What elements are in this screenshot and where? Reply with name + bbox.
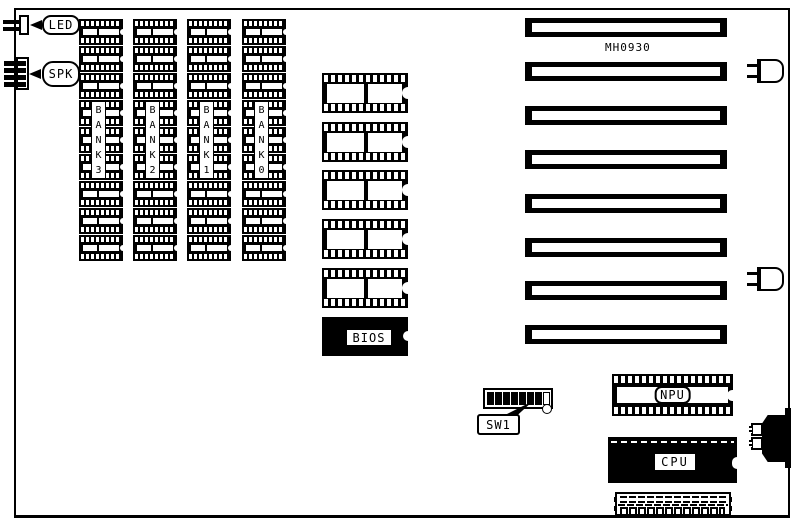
- led-callout: LED: [42, 15, 80, 35]
- sw1-label: SW1: [486, 418, 511, 432]
- connector-lug: [614, 497, 617, 502]
- keyboard-connector: [762, 415, 788, 462]
- slot-stripe: [532, 111, 720, 120]
- chip-pins: [189, 92, 229, 97]
- slot-stripe: [532, 23, 720, 32]
- chip-pins: [135, 65, 175, 70]
- expansion-slot: [525, 150, 727, 169]
- chip-pins: [244, 92, 284, 97]
- power-pin: [674, 496, 681, 503]
- bank-label-char: 0: [258, 163, 264, 178]
- chip-pins: [189, 183, 229, 188]
- chip-body-window: [207, 191, 227, 197]
- chip-body-window: [368, 84, 402, 103]
- spk-connector-pin: [4, 75, 26, 80]
- chip-pins: [244, 210, 284, 215]
- chip-body-window: [327, 230, 364, 249]
- chip-pins: [81, 48, 121, 53]
- power-connector: [615, 492, 731, 516]
- chip-pins: [135, 38, 175, 43]
- memory-chip: [187, 73, 231, 99]
- memory-bank-bank1: BANK1: [187, 19, 231, 264]
- chip-pins: [81, 21, 121, 26]
- bank-label-char: A: [95, 118, 101, 133]
- chip-body-window: [191, 245, 205, 251]
- expansion-slot: [525, 106, 727, 125]
- chip-body-window: [327, 84, 364, 103]
- chip-pins: [189, 48, 229, 53]
- chip-body-window: [153, 83, 173, 89]
- bank-label-char: 2: [149, 163, 155, 178]
- chip-body-window: [137, 56, 151, 62]
- bank-label: BANK0: [254, 101, 269, 179]
- board-model-label: MH0930: [605, 41, 651, 54]
- dip-switch-segment: [487, 392, 494, 405]
- chip-body-window: [83, 83, 97, 89]
- memory-bank-bank3: BANK3: [79, 19, 123, 264]
- chip-pins: [189, 21, 229, 26]
- chip-body-window: [137, 29, 151, 35]
- memory-chip: [242, 181, 286, 207]
- chip-body-window: [153, 245, 173, 251]
- keyboard-connector-pin: [751, 437, 763, 450]
- power-hole: [674, 507, 682, 516]
- chip-body-window: [207, 29, 227, 35]
- chip-body-window: [99, 83, 119, 89]
- chip-body-window: [207, 56, 227, 62]
- chip-body-window: [153, 191, 173, 197]
- power-connector-divider: [618, 504, 728, 506]
- spk-connector-pin: [4, 68, 26, 73]
- chip-pins: [324, 172, 406, 179]
- power-hole: [692, 507, 700, 516]
- slot-stripe: [532, 67, 720, 76]
- bank-label: BANK1: [199, 101, 214, 179]
- bank-label-char: K: [258, 148, 264, 163]
- chip-pins: [81, 210, 121, 215]
- chip-body-window: [246, 83, 260, 89]
- chip-pins: [244, 21, 284, 26]
- chip-pins: [244, 200, 284, 205]
- bank-label-char: A: [258, 118, 264, 133]
- bank-label-char: 1: [203, 163, 209, 178]
- memory-chip: [79, 46, 123, 72]
- expansion-slot: [525, 18, 727, 37]
- slot-stripe: [532, 199, 720, 208]
- memory-chip: [79, 208, 123, 234]
- cpu-socket-dashes: [611, 441, 734, 443]
- expansion-slot: [525, 62, 727, 81]
- power-pin: [665, 496, 672, 503]
- chip-pins: [135, 92, 175, 97]
- chip-body-window: [83, 56, 97, 62]
- chip-pins: [324, 153, 406, 160]
- sw1-leader-dot: [542, 404, 552, 414]
- memory-chip: [242, 235, 286, 261]
- chip-pins: [324, 221, 406, 228]
- connector-lug: [614, 506, 617, 511]
- chip-pins: [135, 237, 175, 242]
- chip-body-window: [99, 218, 119, 224]
- slot-stripe: [532, 286, 720, 295]
- chip-notch: [732, 457, 737, 469]
- chip-body-window: [137, 191, 151, 197]
- power-pin: [692, 496, 699, 503]
- chip-body-window: [368, 181, 402, 200]
- chip-pins: [614, 407, 731, 414]
- edge-connector: [747, 267, 787, 291]
- expansion-slot: [525, 194, 727, 213]
- chip-body-window: [191, 29, 205, 35]
- chip-body-window: [137, 83, 151, 89]
- chip-pins: [244, 237, 284, 242]
- chip-body-window: [368, 230, 402, 249]
- rom-chip: [322, 170, 408, 210]
- bank-label-char: B: [149, 103, 155, 118]
- chip-pins: [135, 210, 175, 215]
- chip-notch: [402, 184, 408, 196]
- rom-chip: [322, 268, 408, 308]
- chip-notch: [402, 136, 408, 148]
- spk-callout: SPK: [42, 61, 80, 87]
- memory-chip: [242, 73, 286, 99]
- chip-body-window: [246, 29, 260, 35]
- chip-pins: [189, 65, 229, 70]
- chip-notch: [402, 233, 408, 245]
- npu-chip: NPU: [612, 374, 733, 416]
- chip-body-window: [207, 245, 227, 251]
- bank-label-char: B: [203, 103, 209, 118]
- spk-label: SPK: [49, 67, 74, 81]
- power-pin: [683, 496, 690, 503]
- connector-lug: [729, 497, 732, 502]
- edge-connector: [747, 59, 787, 83]
- memory-chip: [133, 208, 177, 234]
- connector-lug: [729, 506, 732, 511]
- chip-body-window: [191, 56, 205, 62]
- rom-chip: [322, 219, 408, 259]
- chip-body-window: [262, 56, 282, 62]
- chip-pins: [81, 65, 121, 70]
- chip-notch: [402, 282, 408, 294]
- dip-switch-segment: [511, 392, 518, 405]
- chip-pins: [81, 183, 121, 188]
- chip-body-window: [99, 29, 119, 35]
- chip-pins: [81, 200, 121, 205]
- chip-body-window: [262, 83, 282, 89]
- chip-pins: [324, 201, 406, 208]
- chip-body-window: [83, 191, 97, 197]
- chip-pins: [135, 254, 175, 259]
- power-pin: [719, 496, 726, 503]
- memory-chip: [79, 19, 123, 45]
- chip-body-window: [99, 245, 119, 251]
- led-connector-housing: [19, 15, 29, 35]
- dip-switch-segment: [519, 392, 526, 405]
- bank-label-char: 3: [95, 163, 101, 178]
- memory-chip: [133, 46, 177, 72]
- chip-pins: [244, 183, 284, 188]
- memory-chip: [79, 235, 123, 261]
- bios-label: BIOS: [347, 330, 391, 345]
- chip-pins: [81, 237, 121, 242]
- power-pin: [620, 496, 627, 503]
- chip-pins: [135, 183, 175, 188]
- dip-switch-segment: [503, 392, 510, 405]
- bank-label: BANK3: [91, 101, 106, 179]
- bank-label-char: A: [149, 118, 155, 133]
- memory-chip: [187, 19, 231, 45]
- chip-body-window: [137, 245, 151, 251]
- chip-pins: [324, 250, 406, 257]
- rom-chip: [322, 73, 408, 113]
- chip-pins: [81, 38, 121, 43]
- chip-pins: [324, 75, 406, 82]
- chip-pins: [135, 48, 175, 53]
- chip-pins: [244, 227, 284, 232]
- chip-body-window: [262, 218, 282, 224]
- chip-body-window: [246, 56, 260, 62]
- keyboard-connector-pin: [751, 423, 763, 436]
- chip-pins: [324, 299, 406, 306]
- edge-connector-body: [757, 267, 784, 291]
- memory-chip: [79, 73, 123, 99]
- chip-pins: [135, 200, 175, 205]
- chip-body-window: [327, 133, 364, 152]
- chip-body-window: [191, 218, 205, 224]
- chip-body-window: [153, 218, 173, 224]
- chip-pins: [244, 65, 284, 70]
- memory-chip: [242, 19, 286, 45]
- power-hole: [647, 507, 655, 516]
- power-hole: [719, 507, 725, 516]
- chip-pins: [189, 237, 229, 242]
- power-hole: [638, 507, 646, 516]
- chip-pins: [614, 376, 731, 383]
- memory-chip: [79, 181, 123, 207]
- chip-pins: [189, 38, 229, 43]
- chip-body-window: [83, 29, 97, 35]
- power-hole: [683, 507, 691, 516]
- chip-pins: [81, 227, 121, 232]
- memory-chip: [242, 46, 286, 72]
- chip-pins: [324, 270, 406, 277]
- dip-switch-segment: [535, 392, 542, 405]
- chip-body-window: [83, 245, 97, 251]
- slot-stripe: [532, 330, 720, 339]
- chip-pins: [135, 75, 175, 80]
- bios-chip: BIOS: [322, 317, 408, 356]
- power-hole: [710, 507, 718, 516]
- power-pin: [656, 496, 663, 503]
- cpu-chip: CPU: [608, 437, 737, 483]
- chip-body-window: [246, 245, 260, 251]
- chip-body-window: [137, 218, 151, 224]
- chip-pins: [189, 75, 229, 80]
- rom-chip: [322, 122, 408, 162]
- led-label: LED: [49, 18, 74, 32]
- expansion-slot: [525, 281, 727, 300]
- bank-label-char: A: [203, 118, 209, 133]
- bank-label-char: K: [149, 148, 155, 163]
- chip-body-window: [262, 29, 282, 35]
- dip-switch-segment: [495, 392, 502, 405]
- chip-body-window: [153, 29, 173, 35]
- edge-connector-body: [757, 59, 784, 83]
- chip-body-window: [368, 133, 402, 152]
- chip-pins: [81, 254, 121, 259]
- npu-label: NPU: [654, 386, 691, 404]
- chip-body-window: [327, 279, 364, 298]
- bank-label-char: N: [203, 133, 209, 148]
- chip-body-window: [191, 191, 205, 197]
- memory-chip: [133, 73, 177, 99]
- chip-pins: [189, 210, 229, 215]
- cpu-label: CPU: [655, 454, 695, 470]
- power-pin: [647, 496, 654, 503]
- slot-stripe: [532, 155, 720, 164]
- memory-chip: [187, 181, 231, 207]
- spk-connector-pin: [4, 61, 26, 66]
- memory-chip: [133, 19, 177, 45]
- chip-pins: [324, 104, 406, 111]
- power-hole: [665, 507, 673, 516]
- bank-label: BANK2: [145, 101, 160, 179]
- chip-notch: [403, 331, 408, 341]
- motherboard-diagram: { "board": { "model_label": "MH0930", "i…: [0, 0, 800, 527]
- memory-bank-bank2: BANK2: [133, 19, 177, 264]
- chip-body-window: [83, 218, 97, 224]
- chip-body-window: [207, 83, 227, 89]
- bank-label-char: N: [258, 133, 264, 148]
- chip-body-window: [99, 56, 119, 62]
- memory-chip: [242, 208, 286, 234]
- chip-body-window: [99, 191, 119, 197]
- bank-label-char: N: [95, 133, 101, 148]
- power-hole: [656, 507, 664, 516]
- power-pin: [701, 496, 708, 503]
- expansion-slot: [525, 325, 727, 344]
- chip-pins: [189, 227, 229, 232]
- power-pin: [710, 496, 717, 503]
- expansion-slot: [525, 238, 727, 257]
- power-pin: [629, 496, 636, 503]
- chip-body-window: [327, 181, 364, 200]
- chip-body-window: [191, 83, 205, 89]
- chip-pins: [324, 124, 406, 131]
- memory-chip: [133, 181, 177, 207]
- chip-body-window: [368, 279, 402, 298]
- power-hole: [629, 507, 637, 516]
- power-pin: [638, 496, 645, 503]
- chip-body-window: [246, 218, 260, 224]
- memory-chip: [133, 235, 177, 261]
- chip-pins: [244, 48, 284, 53]
- chip-pins: [135, 21, 175, 26]
- chip-body-window: [262, 245, 282, 251]
- led-connector-pin: [3, 27, 20, 31]
- led-connector-pin: [3, 20, 20, 24]
- chip-pins: [244, 38, 284, 43]
- memory-chip: [187, 208, 231, 234]
- bank-label-char: K: [95, 148, 101, 163]
- bank-label-char: B: [258, 103, 264, 118]
- chip-body-window: [262, 191, 282, 197]
- chip-pins: [189, 200, 229, 205]
- chip-pins: [135, 227, 175, 232]
- power-hole: [701, 507, 709, 516]
- bank-label-char: N: [149, 133, 155, 148]
- bank-label-char: B: [95, 103, 101, 118]
- chip-body-window: [207, 218, 227, 224]
- slot-stripe: [532, 243, 720, 252]
- bank-label-char: K: [203, 148, 209, 163]
- power-hole: [620, 507, 628, 516]
- sw1-callout: SW1: [477, 414, 520, 435]
- chip-notch: [727, 390, 733, 401]
- chip-body-window: [246, 191, 260, 197]
- chip-pins: [244, 254, 284, 259]
- memory-chip: [187, 46, 231, 72]
- spk-connector-pin: [4, 82, 26, 87]
- chip-body-window: [153, 56, 173, 62]
- memory-chip: [187, 235, 231, 261]
- chip-pins: [81, 75, 121, 80]
- chip-pins: [244, 75, 284, 80]
- memory-bank-bank0: BANK0: [242, 19, 286, 264]
- chip-pins: [189, 254, 229, 259]
- chip-notch: [402, 87, 408, 99]
- chip-pins: [81, 92, 121, 97]
